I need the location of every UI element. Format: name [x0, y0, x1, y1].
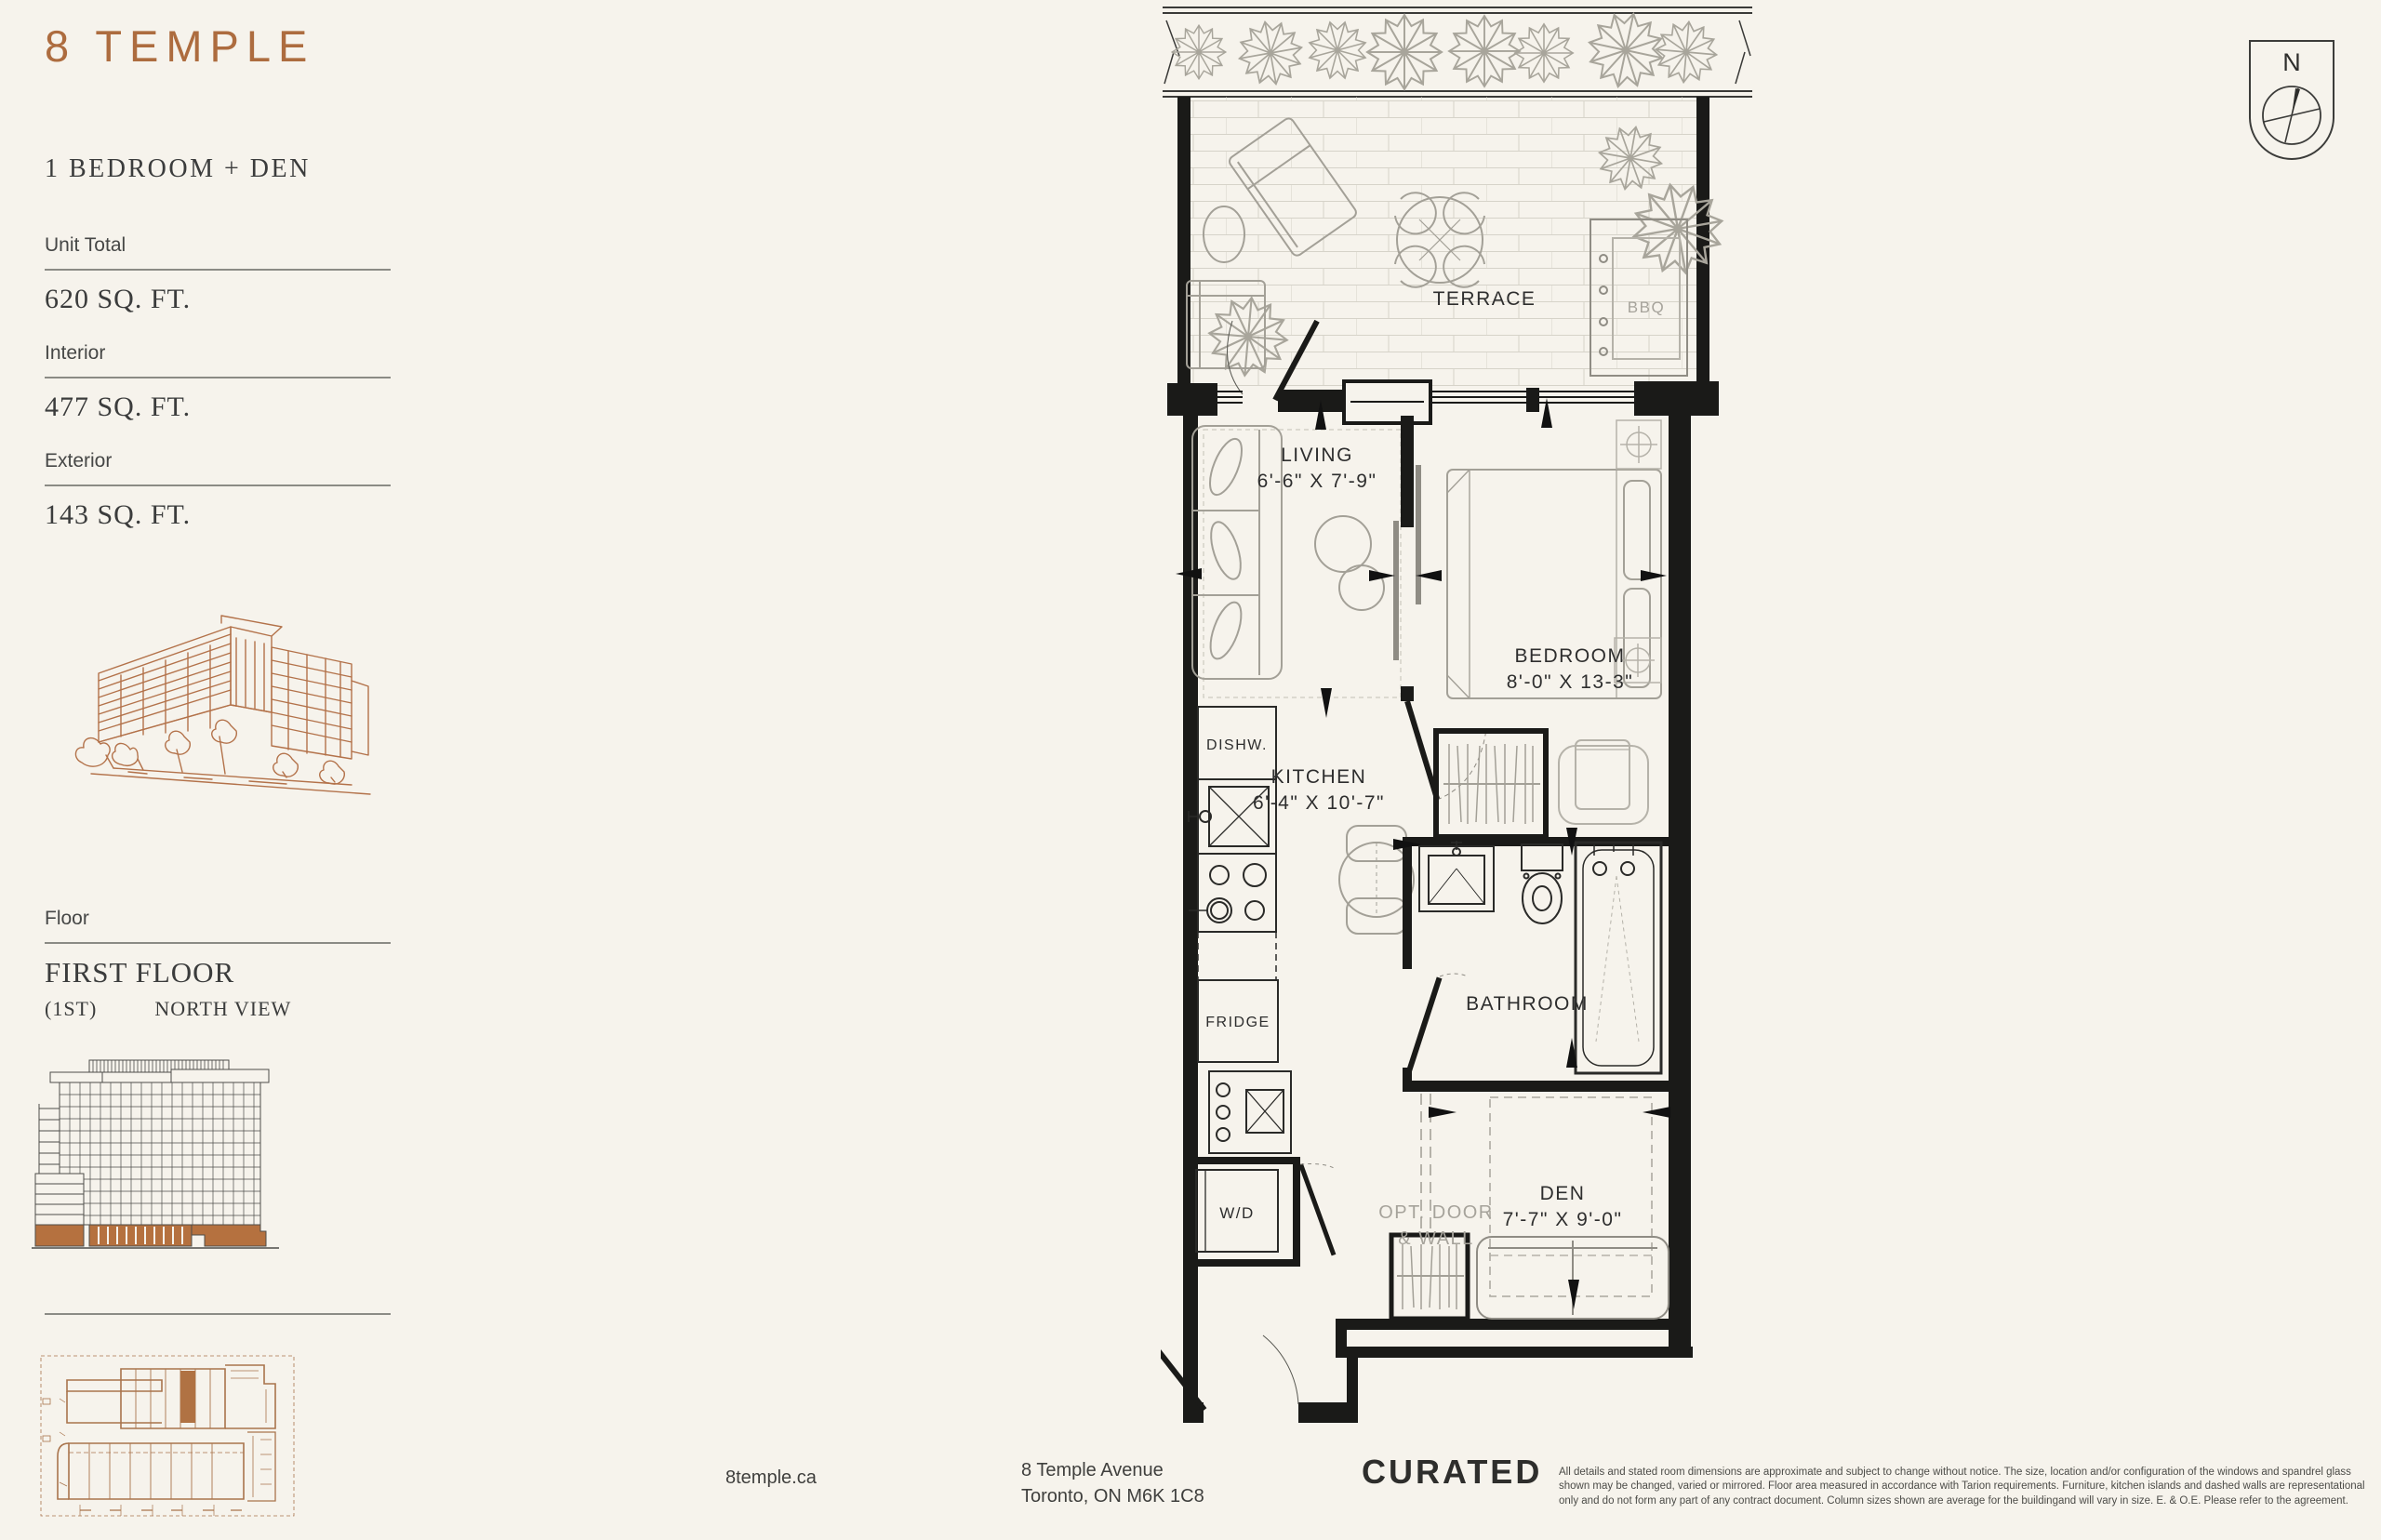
bathroom — [1403, 837, 1691, 1092]
unit-total-label: Unit Total — [45, 234, 126, 257]
exterior-value: 143 SQ. FT. — [45, 499, 191, 531]
divider-line — [45, 942, 391, 944]
compass-north-label: N — [2282, 48, 2301, 76]
disclaimer-text: All details and stated room dimensions a… — [1559, 1466, 2366, 1508]
divider-line — [45, 485, 391, 486]
address-line-1: 8 Temple Avenue — [1021, 1460, 1204, 1481]
toilet — [1522, 844, 1563, 923]
website-url: 8temple.ca — [725, 1467, 817, 1489]
kitchen-sink — [1189, 779, 1276, 854]
den-dims: 7'-7" X 9'-0" — [1503, 1209, 1623, 1230]
kitchen-label: KITCHEN — [1271, 766, 1367, 788]
oven — [1209, 1071, 1291, 1153]
floor-label: Floor — [45, 908, 89, 930]
fridge-label: FRIDGE — [1205, 1015, 1270, 1030]
divider-line — [45, 1313, 391, 1315]
bbq-label: BBQ — [1628, 299, 1665, 316]
interior-value: 477 SQ. FT. — [45, 392, 191, 423]
dishwasher-label: DISHW. — [1206, 737, 1268, 753]
stove — [1189, 854, 1276, 932]
laundry-closet — [1183, 1157, 1336, 1267]
sidebar: 8 TEMPLE 1 BEDROOM + DEN Unit Total 620 … — [45, 0, 391, 1540]
exterior-label: Exterior — [45, 450, 112, 472]
den-sofa — [1477, 1237, 1669, 1319]
terrace-paving — [1190, 97, 1696, 386]
unit-top-wall — [1167, 381, 1719, 423]
bathtub — [1576, 843, 1661, 1073]
living-room — [1192, 426, 1401, 697]
interior-label: Interior — [45, 342, 105, 365]
compass-icon: N — [2242, 35, 2341, 175]
bedroom-closet — [1436, 731, 1546, 837]
entry-door — [1161, 1334, 1298, 1412]
terrace-label: TERRACE — [1433, 288, 1536, 310]
washer-dryer-label: W/D — [1219, 1204, 1255, 1222]
floor-number: (1ST) — [45, 997, 97, 1021]
column — [1616, 420, 1661, 469]
strip-trees — [1172, 3, 1726, 100]
floor-name: FIRST FLOOR — [45, 956, 234, 989]
opt-door-label-2: & WALL — [1398, 1228, 1474, 1249]
sofa — [1192, 426, 1282, 679]
divider-line — [45, 269, 391, 271]
bedroom-chair — [1559, 740, 1648, 824]
keyplan-drawing — [32, 1343, 301, 1529]
den-label: DEN — [1540, 1183, 1586, 1204]
curated-brand-logo: CURATED — [1362, 1453, 1542, 1492]
planting-strip — [1163, 7, 1752, 97]
opt-door-label-1: OPT. DOOR — [1378, 1202, 1494, 1223]
vanity-sink — [1419, 841, 1494, 911]
bedroom-dims: 8'-0" X 13-3" — [1507, 671, 1633, 693]
coffee-table — [1315, 516, 1371, 572]
address-line-2: Toronto, ON M6K 1C8 — [1021, 1486, 1204, 1507]
address-block: 8 Temple Avenue Toronto, ON M6K 1C8 — [1021, 1460, 1204, 1507]
floorplan: BBQ TERRACE — [1161, 0, 1756, 1460]
living-dims: 6'-6" X 7'-9" — [1257, 471, 1377, 492]
floor-view: NORTH VIEW — [154, 997, 291, 1021]
bathroom-label: BATHROOM — [1466, 993, 1589, 1015]
kitchen-dims: 6'-4" X 10'-7" — [1253, 792, 1385, 814]
sliding-door-wall — [1393, 416, 1486, 800]
divider-line — [45, 377, 391, 378]
unit-total-value: 620 SQ. FT. — [45, 284, 191, 315]
building-illustration-icon — [73, 595, 391, 846]
living-label: LIVING — [1281, 445, 1353, 466]
bedroom-label: BEDROOM — [1514, 645, 1625, 667]
elevation-drawing — [32, 1053, 292, 1267]
project-logo: 8 TEMPLE — [45, 20, 314, 72]
unit-type-title: 1 BEDROOM + DEN — [45, 154, 311, 184]
